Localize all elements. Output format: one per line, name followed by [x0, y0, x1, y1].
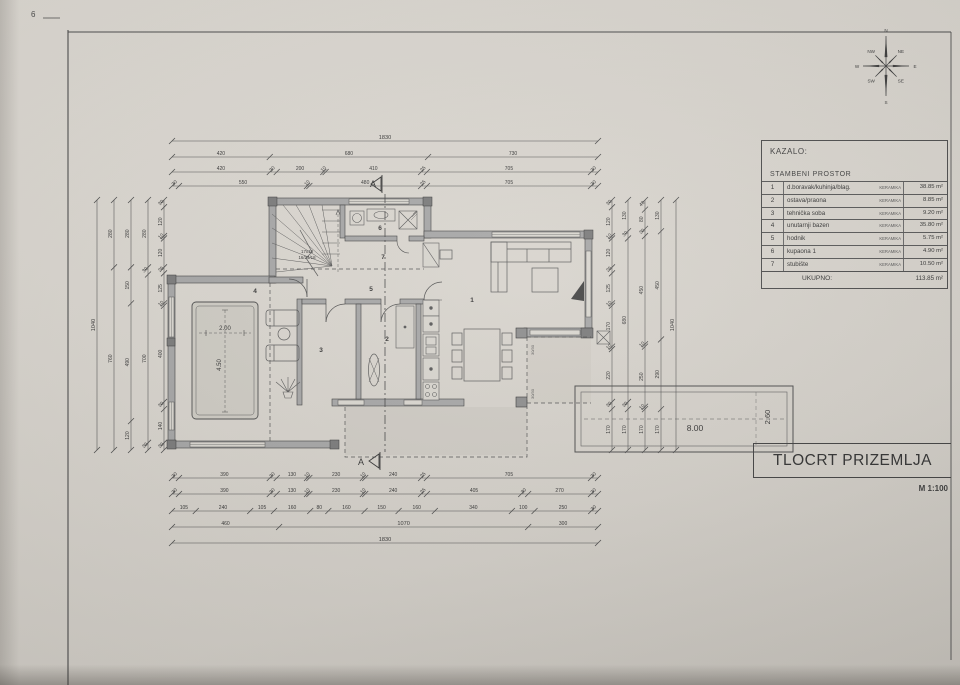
outdoor-fixture [597, 331, 610, 344]
stair-note-line1: 17x18 [301, 249, 314, 254]
compass-point [875, 69, 883, 77]
room-number-7: 7 [381, 254, 385, 261]
legend-cell-no: 2 [762, 195, 783, 207]
outdoor-pool-length-label: 8.00 [687, 423, 704, 433]
legend-cell-name: unutarnji bazen [783, 220, 870, 232]
legend-cell-name: stubište [783, 259, 870, 271]
svg-text:130: 130 [288, 472, 297, 478]
compass-label-NE: NE [898, 49, 904, 54]
compass-label-S: S [884, 100, 887, 105]
legend-cell-area: 10.50 m² [903, 259, 947, 271]
drawing-scale: M 1:100 [753, 484, 948, 493]
kitchen-units [423, 243, 439, 400]
legend-row: 7stubišteKERAMIKA10.50 m² [762, 258, 947, 271]
svg-text:550: 550 [239, 180, 248, 186]
bathroom-fixtures [350, 209, 417, 229]
drawing-sheet: 1830420680730420302001041025705303055010… [0, 0, 960, 685]
indoor-pool [192, 302, 258, 419]
legend-row: 3tehnička sobaKERAMIKA9.20 m² [762, 207, 947, 220]
title-block: TLOCRT PRIZEMLJA [753, 443, 951, 478]
svg-text:120: 120 [125, 431, 131, 440]
legend-cell-name: ostava/praona [783, 195, 870, 207]
svg-text:150: 150 [125, 281, 131, 290]
legend-cell-area: 4.90 m² [903, 246, 947, 258]
legend-row: 5hodnikKERAMIKA5.75 m² [762, 232, 947, 245]
svg-text:220: 220 [606, 371, 612, 380]
room-number-6: 6 [378, 225, 382, 232]
legend-cell-no: 1 [762, 182, 783, 194]
post-size-label: 30/30 [530, 388, 535, 399]
svg-text:10: 10 [638, 340, 646, 348]
svg-text:170: 170 [606, 425, 612, 434]
legend-row: 6kupaona 1KERAMIKA4.90 m² [762, 245, 947, 258]
svg-text:125: 125 [606, 284, 612, 293]
svg-text:420: 420 [217, 151, 226, 157]
svg-text:450: 450 [639, 286, 645, 295]
compass-label-SW: SW [867, 79, 875, 84]
svg-text:705: 705 [505, 166, 514, 172]
svg-text:170: 170 [606, 322, 612, 331]
compass-rose: NNEESESSWWNW [855, 28, 917, 105]
room-number-3: 3 [319, 347, 323, 354]
legend-cell-no: 3 [762, 208, 783, 220]
svg-text:105: 105 [180, 505, 189, 511]
terrace-south [345, 407, 527, 455]
svg-text:120: 120 [606, 248, 612, 257]
svg-text:290: 290 [655, 370, 661, 379]
pool-loungers [266, 310, 299, 361]
svg-text:680: 680 [345, 151, 354, 157]
svg-text:130: 130 [288, 488, 297, 494]
closet-knob [404, 326, 407, 329]
svg-text:280: 280 [125, 229, 131, 238]
legend-total-row: UKUPNO: 113.85 m² [762, 271, 947, 285]
svg-text:760: 760 [108, 354, 114, 363]
svg-text:10: 10 [157, 300, 165, 308]
svg-text:405: 405 [470, 488, 479, 494]
legend-cell-area: 35.80 m² [903, 220, 947, 232]
compass-label-W: W [855, 64, 860, 69]
svg-text:10: 10 [638, 403, 646, 411]
room-number-1: 1 [470, 297, 474, 304]
legend-total-label: UKUPNO: [762, 272, 870, 285]
legend-cell-area: 9.20 m² [903, 208, 947, 220]
compass-point [889, 69, 897, 77]
sheet-frame [43, 18, 951, 685]
page-mark: 6 [31, 10, 35, 19]
legend-cell-material: KERAMIKA [870, 220, 903, 232]
svg-text:1040: 1040 [670, 319, 676, 331]
drawing-title: TLOCRT PRIZEMLJA [773, 452, 932, 470]
svg-text:160: 160 [288, 505, 297, 511]
svg-text:1070: 1070 [397, 521, 409, 527]
legend-cell-name: tehnička soba [783, 208, 870, 220]
stair-note-line2: 16/24/18 [298, 255, 316, 260]
svg-text:270: 270 [555, 488, 564, 494]
section-marker-bottom: A [358, 457, 364, 467]
svg-text:410: 410 [369, 166, 378, 172]
svg-text:730: 730 [509, 151, 518, 157]
svg-text:150: 150 [377, 505, 386, 511]
svg-text:280: 280 [142, 229, 148, 238]
legend-cell-name: kupaona 1 [783, 246, 870, 258]
svg-text:140: 140 [158, 422, 164, 431]
legend-row: 4unutarnji bazenKERAMIKA35.80 m² [762, 219, 947, 232]
room-number-4: 4 [253, 288, 257, 295]
legend-section-title: STAMBENI PROSTOR [762, 156, 947, 181]
legend-cell-name: hodnik [783, 233, 870, 245]
compass-point [889, 55, 897, 63]
legend-row: 2ostava/praonaKERAMIKA8.85 m² [762, 194, 947, 207]
compass-label-NW: NW [867, 49, 875, 54]
legend-total-area: 113.85 m² [870, 272, 947, 285]
legend-cell-material: KERAMIKA [870, 208, 903, 220]
svg-text:280: 280 [108, 229, 114, 238]
svg-text:120: 120 [158, 217, 164, 226]
svg-text:240: 240 [219, 505, 228, 511]
svg-text:170: 170 [639, 425, 645, 434]
svg-text:1830: 1830 [379, 135, 391, 141]
post-size-label: 30/30 [530, 344, 535, 355]
legend-row: 1d.boravak/kuhinja/blag.KERAMIKA38.85 m² [762, 181, 947, 194]
living-furniture [440, 242, 571, 292]
legend-cell-no: 5 [762, 233, 783, 245]
svg-text:250: 250 [639, 372, 645, 381]
compass-label-N: N [884, 28, 887, 33]
ironing-board [369, 354, 380, 386]
legend-cell-name: d.boravak/kuhinja/blag. [783, 182, 870, 194]
legend-cell-area: 5.75 m² [903, 233, 947, 245]
room-number-5: 5 [369, 286, 373, 293]
svg-text:420: 420 [217, 166, 226, 172]
svg-text:705: 705 [505, 180, 514, 186]
svg-text:450: 450 [655, 281, 661, 290]
svg-text:340: 340 [469, 505, 478, 511]
svg-text:1040: 1040 [91, 319, 97, 331]
svg-text:680: 680 [622, 316, 628, 325]
compass-point [875, 55, 883, 63]
compass-label-E: E [913, 64, 916, 69]
plant-icon [276, 377, 300, 398]
legend-cell-no: 7 [762, 259, 783, 271]
svg-text:130: 130 [655, 211, 661, 220]
svg-text:120: 120 [158, 248, 164, 257]
legend-cell-material: KERAMIKA [870, 195, 903, 207]
svg-text:10: 10 [605, 300, 613, 308]
pergola-posts [516, 328, 527, 407]
svg-text:170: 170 [622, 425, 628, 434]
legend-cell-area: 8.85 m² [903, 195, 947, 207]
svg-text:10: 10 [605, 232, 613, 240]
svg-text:160: 160 [342, 505, 351, 511]
svg-text:80: 80 [639, 216, 645, 222]
svg-text:460: 460 [221, 521, 230, 527]
svg-text:390: 390 [220, 472, 229, 478]
legend-heading: KAZALO: [762, 141, 947, 156]
legend-cell-material: KERAMIKA [870, 259, 903, 271]
svg-text:490: 490 [125, 358, 131, 367]
outdoor-pool-width-label: 2.60 [763, 410, 772, 425]
svg-text:230: 230 [332, 472, 341, 478]
room-number-2: 2 [385, 336, 389, 343]
svg-text:105: 105 [258, 505, 267, 511]
legend-cell-no: 6 [762, 246, 783, 258]
svg-text:250: 250 [559, 505, 568, 511]
indoor-pool-width-label: 2.00 [219, 326, 231, 332]
svg-text:200: 200 [296, 166, 305, 172]
svg-text:300: 300 [559, 521, 568, 527]
legend-cell-material: KERAMIKA [870, 233, 903, 245]
compass-point [893, 65, 909, 67]
svg-text:390: 390 [220, 488, 229, 494]
svg-text:400: 400 [158, 349, 164, 358]
section-marker-top: A [370, 179, 376, 189]
svg-text:705: 705 [505, 472, 514, 478]
terrace-east [527, 337, 591, 403]
svg-text:1830: 1830 [379, 537, 391, 543]
svg-text:240: 240 [389, 472, 398, 478]
indoor-pool-length-label: 4.50 [217, 359, 223, 371]
legend-cell-area: 38.85 m² [903, 182, 947, 194]
compass-label-SE: SE [898, 79, 904, 84]
compass-point [885, 36, 888, 57]
legend-table: KAZALO: STAMBENI PROSTOR 1d.boravak/kuhi… [761, 140, 948, 289]
legend-cell-material: KERAMIKA [870, 182, 903, 194]
svg-text:100: 100 [519, 505, 528, 511]
dining-set [452, 329, 512, 381]
svg-text:170: 170 [655, 425, 661, 434]
compass-point [863, 65, 879, 67]
svg-text:125: 125 [158, 284, 164, 293]
staircase [272, 205, 340, 276]
svg-text:10: 10 [157, 232, 165, 240]
svg-text:700: 700 [142, 354, 148, 363]
svg-text:40: 40 [638, 200, 646, 208]
svg-text:240: 240 [389, 488, 398, 494]
legend-rows: 1d.boravak/kuhinja/blag.KERAMIKA38.85 m²… [762, 181, 947, 271]
svg-text:80: 80 [317, 505, 323, 511]
plan-drawing: 1830420680730420302001041025705303055010… [0, 0, 960, 685]
legend-cell-material: KERAMIKA [870, 246, 903, 258]
svg-text:130: 130 [622, 211, 628, 220]
svg-text:230: 230 [332, 488, 341, 494]
svg-text:480: 480 [361, 180, 370, 186]
svg-text:160: 160 [413, 505, 422, 511]
compass-point [885, 75, 888, 96]
legend-cell-no: 4 [762, 220, 783, 232]
svg-text:120: 120 [606, 217, 612, 226]
